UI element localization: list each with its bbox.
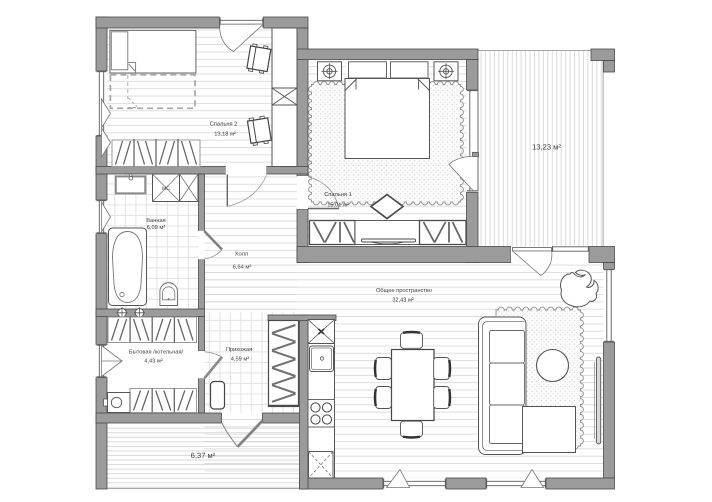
svg-text:6,09 м²: 6,09 м² xyxy=(147,225,166,231)
svg-text:15,01 м²: 15,01 м² xyxy=(327,203,349,209)
svg-text:Общее пространство: Общее пространство xyxy=(376,287,432,294)
svg-text:Спальня 1: Спальня 1 xyxy=(324,192,352,198)
svg-text:13,18 м²: 13,18 м² xyxy=(214,131,236,137)
svg-text:Спальня 2: Спальня 2 xyxy=(210,122,238,128)
svg-text:13,23 м²: 13,23 м² xyxy=(532,142,561,151)
svg-text:6,37 м²: 6,37 м² xyxy=(191,451,216,460)
svg-text:4,59 м²: 4,59 м² xyxy=(231,356,250,362)
svg-text:МС: МС xyxy=(162,186,170,192)
svg-text:Ванная: Ванная xyxy=(146,218,165,224)
svg-text:Бытовая /котельная/: Бытовая /котельная/ xyxy=(129,348,184,355)
svg-text:Холл: Холл xyxy=(235,252,248,258)
svg-text:6,64 м²: 6,64 м² xyxy=(233,265,252,271)
svg-text:32,43 м²: 32,43 м² xyxy=(392,297,414,303)
svg-text:Прихожая: Прихожая xyxy=(226,347,252,353)
svg-text:4,43 м²: 4,43 м² xyxy=(144,359,163,365)
